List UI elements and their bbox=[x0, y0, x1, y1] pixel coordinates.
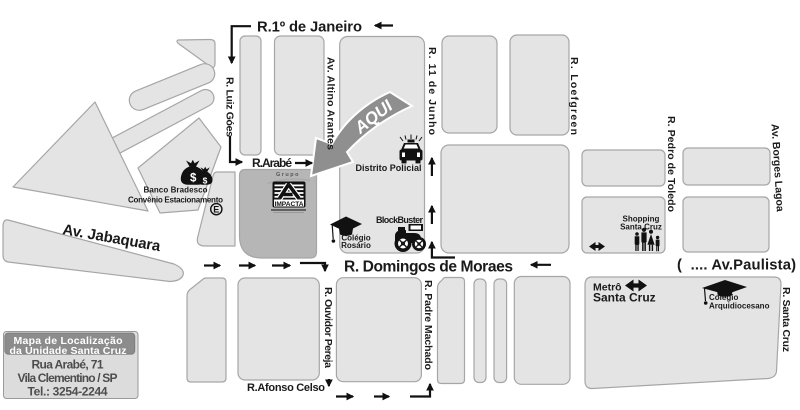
svg-text:R. Domingos de Moraes: R. Domingos de Moraes bbox=[344, 259, 513, 276]
svg-text:R. Padre Machado: R. Padre Machado bbox=[422, 280, 434, 370]
svg-text:R.1º de Janeiro: R.1º de Janeiro bbox=[257, 19, 362, 35]
svg-text:( .... Av.Paulista): ( .... Av.Paulista) bbox=[677, 258, 796, 274]
svg-text:Banco Bradesco: Banco Bradesco bbox=[144, 186, 208, 195]
svg-text:R.Afonso Celso: R.Afonso Celso bbox=[247, 382, 325, 394]
svg-text:Distrito Policial: Distrito Policial bbox=[356, 163, 422, 173]
svg-text:E: E bbox=[213, 205, 219, 215]
svg-text:R. Loefgreen: R. Loefgreen bbox=[568, 57, 580, 135]
svg-text:Av. Altino Arantes: Av. Altino Arantes bbox=[325, 57, 337, 150]
svg-text:$: $ bbox=[190, 173, 197, 185]
svg-text:R. Ouvidor Pereja: R. Ouvidor Pereja bbox=[322, 287, 334, 368]
svg-text:Tel.: 3254-2244: Tel.: 3254-2244 bbox=[28, 385, 108, 399]
svg-text:Vila Clementino / SP: Vila Clementino / SP bbox=[18, 371, 118, 385]
svg-text:Santa Cruz: Santa Cruz bbox=[620, 223, 662, 232]
svg-text:R. 11 de Junho: R. 11 de Junho bbox=[426, 47, 438, 135]
svg-text:Arquidiocesano: Arquidiocesano bbox=[709, 302, 770, 311]
svg-text:R. Luiz Góes: R. Luiz Góes bbox=[224, 77, 236, 137]
svg-text:IMPACTA: IMPACTA bbox=[275, 201, 304, 208]
svg-text:Grupo: Grupo bbox=[276, 172, 300, 178]
svg-text:Convênio Estacionamento: Convênio Estacionamento bbox=[128, 195, 223, 204]
svg-text:BlockBuster: BlockBuster bbox=[376, 215, 423, 225]
svg-text:Rua Arabé, 71: Rua Arabé, 71 bbox=[32, 358, 104, 372]
svg-text:Rosário: Rosário bbox=[341, 241, 371, 250]
svg-text:R. Pedro de Toledo: R. Pedro de Toledo bbox=[665, 116, 677, 212]
svg-text:Av. Borges Lagoa: Av. Borges Lagoa bbox=[769, 123, 786, 212]
svg-text:$: $ bbox=[203, 176, 208, 186]
svg-text:R.Arabé: R.Arabé bbox=[252, 156, 292, 170]
svg-text:R. Santa Cruz: R. Santa Cruz bbox=[780, 287, 792, 352]
svg-text:Santa Cruz: Santa Cruz bbox=[593, 290, 656, 304]
svg-text:da Unidade Santa Cruz: da Unidade Santa Cruz bbox=[10, 345, 127, 357]
